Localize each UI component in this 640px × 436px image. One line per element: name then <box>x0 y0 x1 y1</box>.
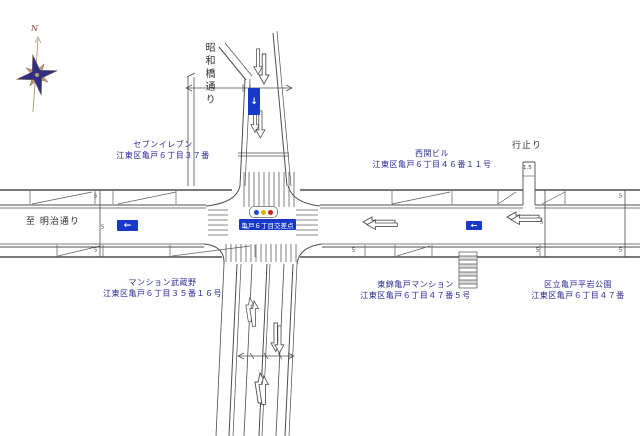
one-way-down-sign-icon: ↓ <box>248 88 260 115</box>
building-name: 西関ビル <box>352 148 512 159</box>
building-address: 江東区亀戸６丁目４７番 <box>512 290 640 301</box>
traffic-light-icon <box>249 206 278 218</box>
road-width-marker: 5 <box>619 248 622 253</box>
building-label-nishiseki-building: 西関ビル 江東区亀戸６丁目４６番１１号 <box>352 148 512 170</box>
building-label-seven-eleven: セブンイレブン 江東区亀戸６丁目３７番 <box>88 139 238 161</box>
intersection-name-sign: 亀戸６丁目交差点 <box>239 219 296 230</box>
road-width-marker: 5 <box>619 194 622 199</box>
one-way-left-sign-icon: ← <box>466 221 482 230</box>
building-name: 東錦亀戸マンション <box>338 279 493 290</box>
street-label-to-meiji-dori: 至 明治通り <box>26 217 80 227</box>
street-label-dead-end: 行止り <box>512 141 542 151</box>
building-address: 江東区亀戸６丁目４７番５号 <box>338 290 493 301</box>
signal-red-dot <box>268 210 273 215</box>
dimension-line-top <box>186 84 292 92</box>
compass-north-label: N <box>31 24 38 33</box>
building-label-kameido-park: 区立亀戸平岩公園 江東区亀戸６丁目４７番 <box>512 279 640 301</box>
building-address: 江東区亀戸６丁目３５番１６号 <box>85 288 240 299</box>
road-width-marker: 5 <box>540 220 543 225</box>
compass-rose-icon <box>12 37 62 112</box>
alley-width-marker: 1.5 <box>523 165 532 171</box>
building-label-mansion-musashino: マンション武蔵野 江東区亀戸６丁目３５番１６号 <box>85 277 240 299</box>
road-network-drawing <box>0 0 640 436</box>
road-width-marker: 5 <box>94 194 97 199</box>
one-way-left-sign-icon: ← <box>117 220 138 231</box>
road-width-marker: 5 <box>94 248 97 253</box>
signal-yellow-dot <box>261 210 266 215</box>
road-width-marker: 5 <box>101 225 104 230</box>
building-label-kameido-mansion: 東錦亀戸マンション 江東区亀戸６丁目４７番５号 <box>338 279 493 301</box>
signal-green-dot <box>254 210 259 215</box>
map-canvas: N 昭和橋通り 至 明治通り 行止り セブンイレブン 江東区亀戸６丁目３７番 西… <box>0 0 640 436</box>
top-road <box>186 31 292 186</box>
building-address: 江東区亀戸６丁目４６番１１号 <box>352 159 512 170</box>
building-address: 江東区亀戸６丁目３７番 <box>88 150 238 161</box>
building-name: 区立亀戸平岩公園 <box>512 279 640 290</box>
building-name: マンション武蔵野 <box>85 277 240 288</box>
street-label-showabashi-dori: 昭和橋通り <box>203 42 213 126</box>
road-width-marker: 5 <box>352 248 355 253</box>
building-name: セブンイレブン <box>88 139 238 150</box>
road-width-marker: 5 <box>536 248 539 253</box>
